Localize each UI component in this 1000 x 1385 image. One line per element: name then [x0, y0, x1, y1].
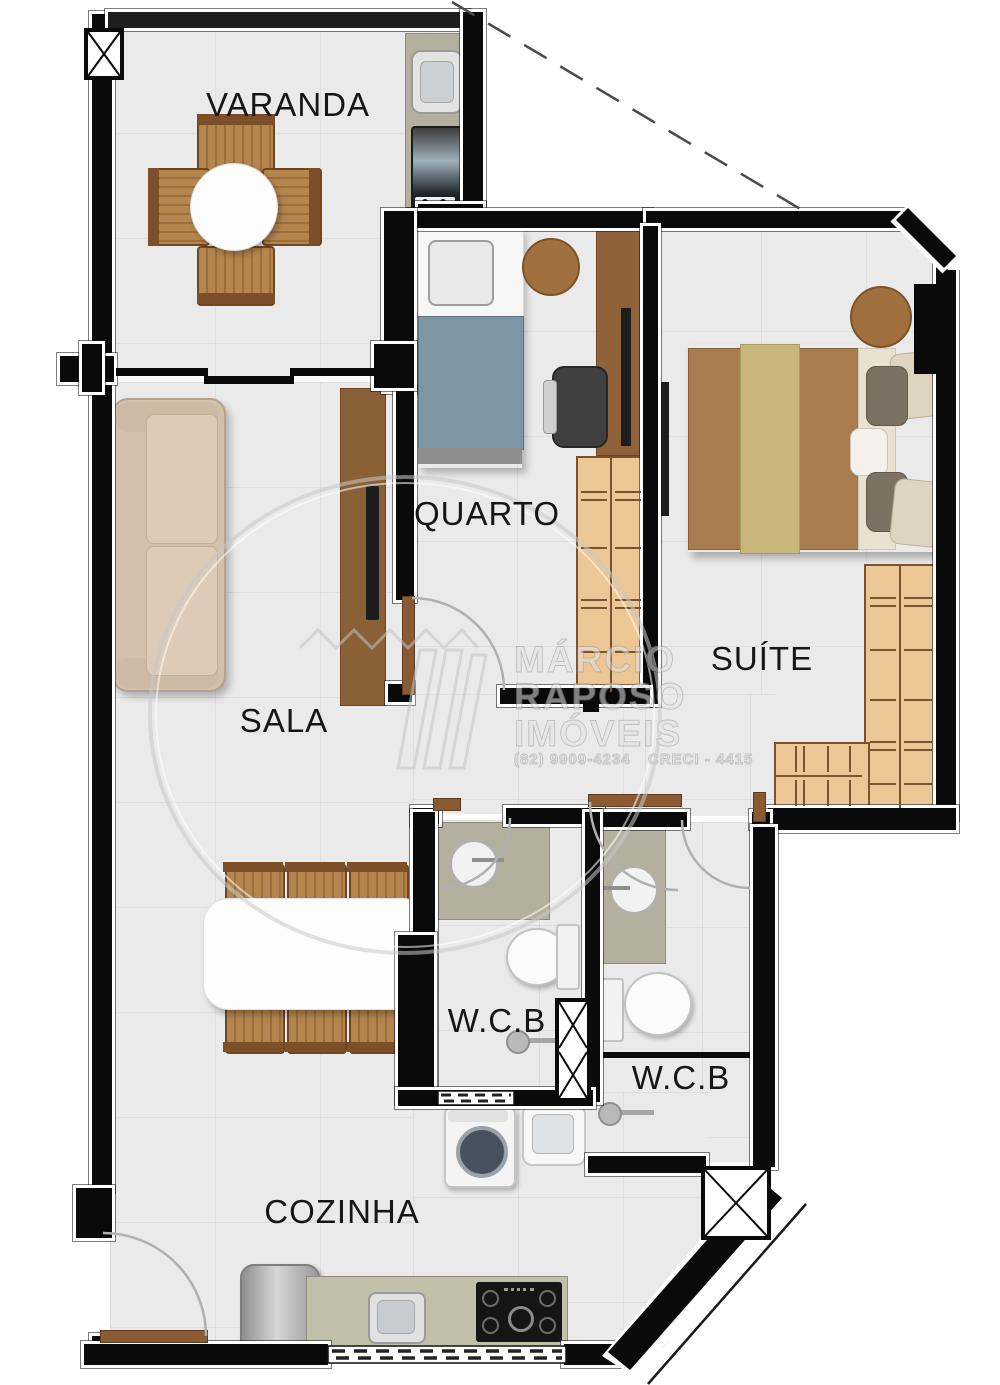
tv-suite	[659, 382, 669, 516]
single-bed-footboard	[418, 448, 522, 464]
entrance-pilaster	[76, 1188, 112, 1238]
suite-top-wall	[646, 211, 908, 228]
sliding-door-rail	[290, 368, 378, 376]
office-chair	[552, 366, 608, 448]
sliding-door-rail	[204, 376, 294, 384]
washing-machine	[444, 1106, 516, 1188]
wcb2-shower-divider	[598, 1052, 756, 1058]
varanda-top-rail	[108, 12, 468, 28]
room-label-cozinha: COZINHA	[264, 1193, 420, 1231]
room-label-sala: SALA	[240, 702, 328, 740]
quarto-bottom-wall	[500, 688, 650, 704]
wardrobe-quarto	[576, 456, 651, 698]
wardrobe-suite-horizontal	[774, 742, 870, 814]
varanda-table	[190, 163, 278, 251]
sofa	[112, 398, 226, 692]
suite-bottom-wall	[768, 808, 956, 830]
suite-wall-niche	[914, 284, 938, 374]
tv-panel	[340, 388, 386, 706]
double-bed	[688, 344, 946, 552]
kitchen-sink	[368, 1292, 426, 1344]
wcb2-top-wall	[597, 812, 687, 827]
wcb2-faucet	[602, 886, 630, 890]
bedside-stool	[522, 238, 580, 296]
floor-plan: MÁRCIO RAPOSO IMÓVEIS (82) 9909-4234 CRE…	[0, 0, 1000, 1385]
wcb1-sink	[450, 840, 498, 888]
kitchen-sink-basin	[377, 1300, 415, 1334]
grill	[411, 126, 463, 212]
room-label-wcb1: W.C.B	[448, 1002, 547, 1040]
dining-chair-rail	[223, 1042, 283, 1052]
room-label-quarto: QUARTO	[414, 495, 560, 533]
sofa-cushion	[146, 546, 218, 676]
dining-chair-rail	[347, 862, 407, 872]
cooktop-burner	[539, 1317, 556, 1334]
sliding-door-rail	[116, 368, 208, 376]
laundry-sink	[522, 1104, 586, 1166]
varanda-left-wall	[92, 14, 112, 376]
bed-pillow-gray	[866, 366, 908, 426]
wcb2-bottom-wall	[588, 1156, 706, 1173]
quarto-bottom-tooth	[583, 702, 599, 712]
quarto-left-wall	[396, 388, 414, 600]
wcb2-right-wall	[753, 827, 775, 1167]
washer-drum	[456, 1126, 508, 1178]
wcb2-toilet-tank	[600, 978, 624, 1042]
varanda-right-wall	[463, 12, 483, 218]
varanda-sink-basin	[420, 61, 454, 103]
single-bed-blanket	[418, 316, 524, 450]
cooktop-burner	[482, 1317, 499, 1334]
cooktop-center-burner	[508, 1306, 534, 1332]
wcb2-sink	[610, 866, 658, 914]
cooktop-knobs	[504, 1288, 534, 1291]
sofa-cushion	[146, 414, 218, 544]
dining-chair-rail	[285, 862, 345, 872]
wcb1-toilet-tank	[556, 924, 580, 990]
cooktop-burner	[482, 1290, 499, 1307]
wcb1-left-pilaster	[398, 935, 434, 1102]
quarto-top-wall	[410, 211, 650, 228]
single-bed-pillow	[428, 240, 494, 306]
double-bed-runner	[740, 344, 800, 554]
projection-dashed-line	[452, 2, 802, 210]
sala-quarto-corner-block	[374, 344, 414, 388]
bottom-wall-mid	[564, 1344, 634, 1365]
entrance-door-leaf	[100, 1330, 208, 1343]
single-bed	[418, 228, 522, 468]
quarto-door-leaf	[402, 596, 415, 695]
wcb2-door-leaf	[753, 792, 766, 822]
washer-controls	[448, 1110, 508, 1122]
bottom-wall-left	[84, 1344, 328, 1365]
room-label-wcb2: W.C.B	[632, 1059, 731, 1097]
wcb2-toilet-bowl	[624, 972, 692, 1036]
varanda-chair-rail	[148, 168, 159, 246]
suite-right-wall	[936, 250, 956, 818]
shaft-box-corner	[703, 1168, 769, 1238]
wcb1-faucet	[472, 858, 504, 862]
varanda-sink	[411, 50, 463, 114]
round-rug	[850, 286, 912, 348]
wcb2-shower-head	[598, 1102, 622, 1126]
wardrobe-suite-vertical	[864, 564, 940, 814]
quarto-suite-divider-wall	[643, 226, 658, 704]
laundry-sink-basin	[532, 1114, 574, 1154]
sala-left-wall	[92, 376, 112, 1190]
wcb1-door-leaf	[433, 798, 461, 811]
wcb1-bottom-wall	[398, 1090, 593, 1106]
cooktop	[476, 1282, 562, 1342]
bed-pillow-white	[850, 428, 888, 476]
room-label-suite: SUÍTE	[711, 640, 813, 678]
tv-sala	[366, 486, 379, 620]
sala-top-pilaster-b	[82, 344, 102, 392]
varanda-chair-rail	[309, 168, 320, 246]
cooktop-burner	[539, 1290, 556, 1307]
dining-chair-rail	[223, 862, 283, 872]
varanda-chair-rail	[197, 293, 275, 304]
room-label-varanda: VARANDA	[206, 86, 370, 124]
bath-divider-wall	[585, 812, 600, 1102]
office-chair-back	[543, 380, 557, 434]
dining-table	[203, 898, 429, 1010]
suite-door-leaf	[588, 794, 682, 807]
tv-quarto	[621, 308, 631, 446]
dining-chair-rail	[285, 1042, 345, 1052]
